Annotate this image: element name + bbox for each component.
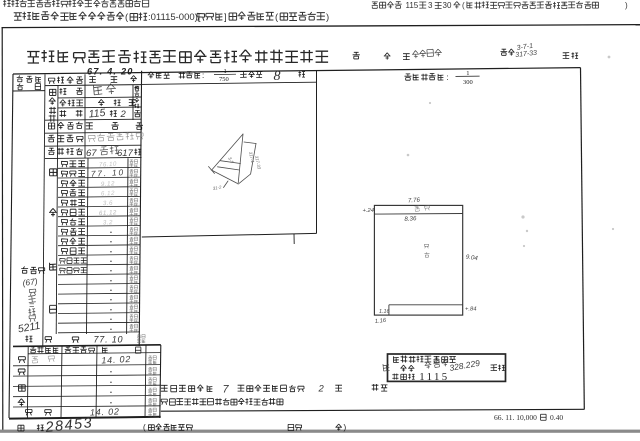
svg-text:8.36: 8.36 <box>404 215 417 223</box>
svg-text:•: • <box>110 278 112 284</box>
svg-text:14. 02: 14. 02 <box>90 406 120 417</box>
svg-text:7.76: 7.76 <box>408 197 421 205</box>
svg-text:): ) <box>344 423 347 432</box>
svg-text:•: • <box>110 327 112 333</box>
svg-text:7: 7 <box>223 384 230 396</box>
svg-text:1.16: 1.16 <box>375 318 388 325</box>
svg-text:2: 2 <box>120 109 127 120</box>
svg-text:14. 02: 14. 02 <box>101 354 131 366</box>
svg-text:): ) <box>326 12 329 23</box>
svg-text:115: 115 <box>88 107 106 121</box>
svg-text:3.2: 3.2 <box>103 219 114 227</box>
svg-text::: : <box>202 71 204 80</box>
svg-text:]: ] <box>224 12 227 23</box>
svg-text:•: • <box>110 390 112 396</box>
svg-text:•: • <box>110 317 112 323</box>
svg-text:617: 617 <box>117 148 134 159</box>
svg-text:61.12: 61.12 <box>99 209 117 217</box>
svg-text:•: • <box>110 380 112 386</box>
svg-text:•: • <box>110 249 112 255</box>
svg-text:•: • <box>110 269 112 275</box>
svg-text:): ) <box>625 1 628 10</box>
svg-text:+.84: +.84 <box>465 307 476 313</box>
svg-text:2: 2 <box>318 384 325 395</box>
svg-text:(: ( <box>143 423 146 432</box>
svg-text:•: • <box>110 400 112 406</box>
svg-text:6.12: 6.12 <box>101 190 115 198</box>
svg-text:•: • <box>110 240 112 246</box>
svg-text:77. 10: 77. 10 <box>94 335 124 345</box>
svg-text:66. 11. 10,000: 66. 11. 10,000 <box>494 413 537 422</box>
svg-text:67: 67 <box>86 148 97 159</box>
svg-text:•: • <box>110 259 112 265</box>
svg-text:(: ( <box>462 1 465 10</box>
svg-text:30: 30 <box>443 1 452 10</box>
svg-text:3.6: 3.6 <box>103 200 114 208</box>
svg-text:8: 8 <box>274 69 281 84</box>
svg-text:(67): (67) <box>22 276 39 288</box>
svg-text:300: 300 <box>463 79 473 86</box>
svg-text:67. 4. 20: 67. 4. 20 <box>87 66 134 76</box>
svg-text::: : <box>447 73 449 82</box>
svg-text:1115: 1115 <box>419 371 449 383</box>
svg-text:+.24: +.24 <box>363 208 374 214</box>
svg-text:•: • <box>110 230 112 236</box>
svg-text:•: • <box>110 288 112 294</box>
svg-text:77. 10: 77. 10 <box>91 167 126 179</box>
svg-text:115: 115 <box>406 1 419 10</box>
svg-text:1.16: 1.16 <box>379 309 390 315</box>
svg-text:750: 750 <box>219 76 229 83</box>
svg-text:3: 3 <box>428 1 433 10</box>
svg-text:0.40: 0.40 <box>550 413 563 422</box>
svg-text:9.12: 9.12 <box>101 180 115 188</box>
svg-text:•: • <box>110 369 112 375</box>
svg-text:•: • <box>110 307 112 313</box>
svg-text:•: • <box>110 298 112 304</box>
svg-text::01115-000)[: :01115-000)[ <box>148 12 201 23</box>
